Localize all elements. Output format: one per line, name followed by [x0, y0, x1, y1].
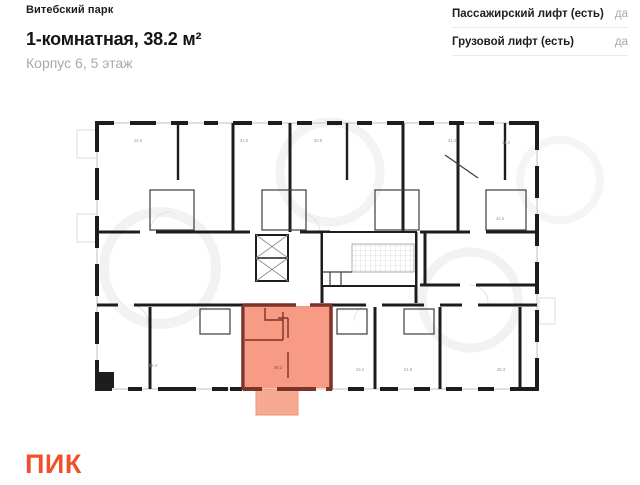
- highlighted-apartment[interactable]: [243, 305, 332, 415]
- shaft-block: [98, 372, 114, 388]
- stair-core: [322, 232, 416, 286]
- area-label: 38.2: [274, 365, 283, 370]
- floor-plan: 44.631.630.831.434.044.539.438.233.221.8…: [0, 0, 640, 480]
- area-label: 44.6: [134, 138, 143, 143]
- exterior-balconies: [77, 130, 555, 324]
- balcony: [256, 389, 298, 415]
- area-label: 38.3: [497, 367, 506, 372]
- pik-logo: ПИК: [25, 449, 82, 480]
- area-label: 31.4: [448, 138, 457, 143]
- elevator-core: [256, 235, 288, 281]
- area-label: 39.4: [149, 363, 158, 368]
- area-label: 21.8: [404, 367, 413, 372]
- area-label: 30.8: [314, 138, 323, 143]
- area-label: 31.6: [240, 138, 249, 143]
- area-label: 34.0: [502, 140, 511, 145]
- area-label: 44.5: [496, 216, 505, 221]
- area-label: 33.2: [356, 367, 365, 372]
